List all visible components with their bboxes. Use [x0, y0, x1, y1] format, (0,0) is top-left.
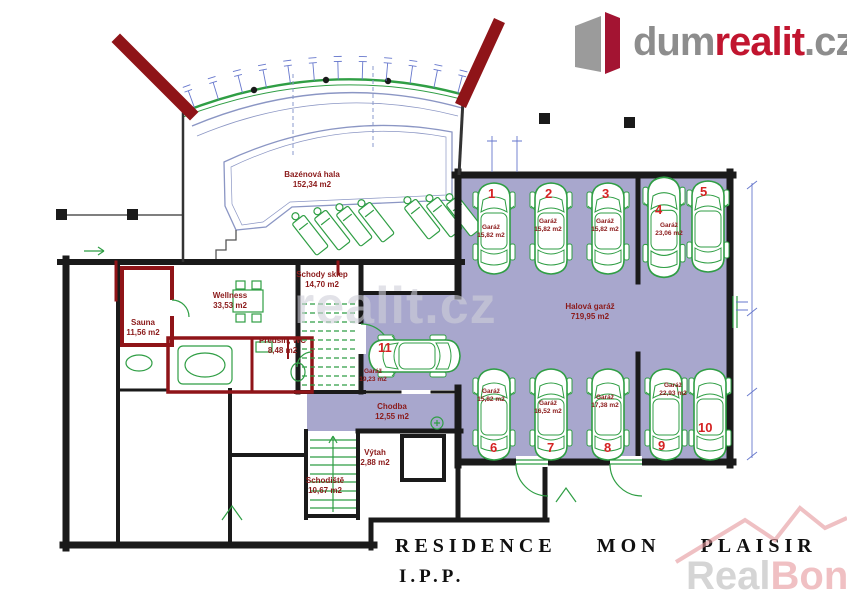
room-label-chodba: Chodba12,55 m2: [352, 402, 432, 422]
parking-label-4: Garáž23,06 m2: [646, 222, 692, 238]
sun-loungers: [287, 190, 482, 256]
parking-number-9: 9: [658, 439, 665, 452]
parking-number-5: 5: [700, 185, 707, 198]
parking-label-8: Garáž17,38 m2: [582, 394, 628, 410]
bathtub: [178, 346, 232, 384]
dumrealit-logo-icon: [573, 10, 621, 74]
dumrealit-logo: dumrealit.cz: [573, 10, 847, 74]
room-label-bazenova-hala: Bazénová hala152,34 m2: [262, 170, 362, 190]
parking-label-1: Garáž15,82 m2: [468, 224, 514, 240]
plan-title-line1: RESIDENCE MON PLAISIR: [395, 534, 817, 558]
parking-number-1: 1: [488, 187, 495, 200]
sauna-stove: [126, 355, 152, 371]
parking-number-7: 7: [547, 441, 554, 454]
room-label-predsin-wc: Předsíň, WC8,48 m2: [240, 336, 325, 356]
parking-label-2: Garáž15,82 m2: [525, 218, 571, 234]
room-label-halova-garaz: Halová garáž719,95 m2: [545, 302, 635, 322]
plan-title-line2: I.P.P.: [399, 566, 817, 588]
glass-wall-curve: [183, 56, 468, 158]
room-label-vytah: Výtah2,88 m2: [340, 448, 410, 468]
parking-number-10: 10: [698, 421, 712, 434]
room-label-schody-sklep: Schody sklep14,70 m2: [282, 270, 362, 290]
parking-label-7: Garáž16,52 m2: [525, 400, 571, 416]
plan-title: RESIDENCE MON PLAISIR I.P.P.: [395, 534, 817, 588]
parking-number-3: 3: [602, 187, 609, 200]
room-label-sauna: Sauna11,56 m2: [108, 318, 178, 338]
parking-number-2: 2: [545, 187, 552, 200]
room-label-schodiste: Schodiště10,67 m2: [285, 476, 365, 496]
parking-label-3: Garáž15,82 m2: [582, 218, 628, 234]
parking-number-6: 6: [490, 441, 497, 454]
parking-label-11: Garáž19,23 m2: [350, 368, 396, 384]
room-label-wellness: Wellness33,53 m2: [185, 291, 275, 311]
parking-number-8: 8: [604, 441, 611, 454]
floorplan-page: realit.cz Bazénová hala152,34 m2 Wellnes…: [0, 0, 847, 600]
parking-number-4: 4: [655, 203, 662, 216]
parking-label-6: Garáž15,82 m2: [468, 388, 514, 404]
dumrealit-logo-text: dumrealit.cz: [633, 22, 847, 62]
floorplan-drawing: [0, 0, 847, 600]
parking-label-9: Garáž22,93 m2: [650, 382, 696, 398]
parking-number-11: 11: [378, 341, 392, 354]
